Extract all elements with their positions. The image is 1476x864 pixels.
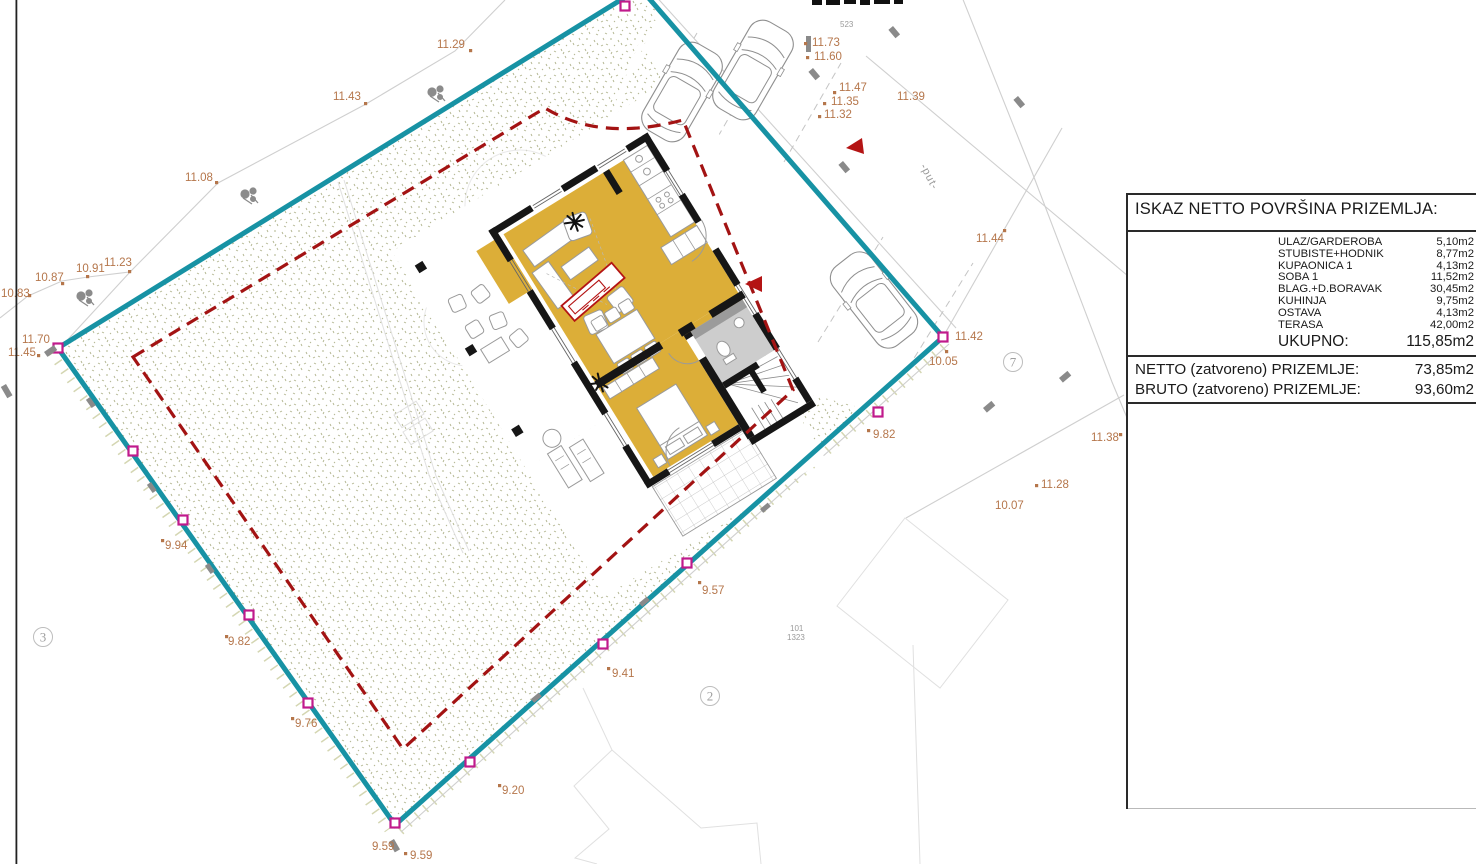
panel-rule <box>1128 230 1476 232</box>
elevation-label: 9.41 <box>612 668 634 680</box>
elevation-dot <box>833 91 836 94</box>
area-table-row: TERASA42,00m2 <box>1278 320 1474 332</box>
elevation-label: 11.23 <box>104 257 132 269</box>
elevation-dot <box>804 42 807 45</box>
elevation-label: 11.60 <box>814 51 842 63</box>
elevation-dot <box>225 635 228 638</box>
elevation-dot <box>818 115 821 118</box>
room-name: NETTO (zatvoreno) PRIZEMLJE: <box>1135 360 1359 380</box>
elevation-dot <box>698 581 701 584</box>
elevation-label: 11.70 <box>22 334 50 346</box>
room-area: 8,77m2 <box>1436 249 1474 261</box>
elevation-label: 9.94 <box>165 540 188 552</box>
elevation-dot <box>128 270 131 273</box>
elevation-label: 11.73 <box>812 37 840 49</box>
elevation-label: 10.87 <box>35 272 64 284</box>
tree-icon <box>240 187 258 204</box>
elevation-label: 11.38 <box>1091 432 1119 444</box>
area-table-total: UKUPNO: 115,85m2 <box>1278 333 1474 351</box>
elevation-dot <box>823 102 826 105</box>
elevation-label: 9.57 <box>702 585 724 597</box>
area-table-title: ISKAZ NETTO POVRŠINA PRIZEMLJA: <box>1135 200 1438 219</box>
tree-icon <box>427 85 445 102</box>
elevation-dot <box>469 49 472 52</box>
elevation-label: 11.35 <box>831 96 859 108</box>
elevation-label: 11.44 <box>976 233 1005 245</box>
panel-rule <box>1128 808 1476 809</box>
elevation-dot <box>28 294 31 297</box>
cadastral-ref: 101 <box>790 624 804 633</box>
room-name: BRUTO (zatvoreno) PRIZEMLJE: <box>1135 380 1361 400</box>
elevation-label: 10.07 <box>995 500 1024 512</box>
site-plan-sheet: 11.2911.4311.0810.8710.9111.2310.8311.70… <box>0 0 1476 864</box>
room-name: STUBISTE+HODNIK <box>1278 249 1384 261</box>
panel-border <box>1126 193 1128 809</box>
elevation-label: 9.20 <box>502 785 524 797</box>
elevation-dot <box>867 429 870 432</box>
room-area: 93,60m2 <box>1415 380 1474 400</box>
elevation-dot <box>291 717 294 720</box>
road-label: -put- <box>917 162 940 192</box>
elevation-dot <box>1003 229 1006 232</box>
elevation-dot <box>607 667 610 670</box>
room-area: 9,75m2 <box>1436 296 1474 308</box>
elevation-dot <box>37 354 40 357</box>
elevation-dot <box>806 56 809 59</box>
panel-rule <box>1128 402 1476 404</box>
room-name: TERASA <box>1278 320 1323 332</box>
room-name: KUHINJA <box>1278 296 1326 308</box>
elevation-dot <box>61 282 64 285</box>
elevation-label: 11.39 <box>897 91 925 103</box>
elevation-label: 9.76 <box>295 718 317 730</box>
area-table-row: NETTO (zatvoreno) PRIZEMLJE:73,85m2 <box>1135 360 1474 380</box>
elevation-label: 9.82 <box>228 636 250 648</box>
elevation-label: 11.42 <box>955 331 983 343</box>
room-name: OSTAVA <box>1278 308 1321 320</box>
elevation-dot <box>404 852 407 855</box>
room-area: 42,00m2 <box>1430 320 1474 332</box>
elevation-dot <box>945 350 948 353</box>
panel-rule <box>1128 355 1476 357</box>
area-table-panel: ISKAZ NETTO POVRŠINA PRIZEMLJA: ULAZ/GAR… <box>1128 0 1476 864</box>
area-table-row: OSTAVA4,13m2 <box>1278 308 1474 320</box>
sheet-frame-line <box>16 0 18 864</box>
elevation-label: 11.43 <box>333 91 361 103</box>
elevation-label: 10.83 <box>1 288 30 300</box>
total-value: 115,85m2 <box>1406 333 1474 351</box>
area-summary-rows: NETTO (zatvoreno) PRIZEMLJE:73,85m2BRUTO… <box>1135 360 1474 399</box>
elevation-label: 11.08 <box>185 172 213 184</box>
elevation-label: 9.82 <box>873 429 895 441</box>
clipped-top-text <box>812 0 903 5</box>
elevation-dot <box>215 181 218 184</box>
tree-icon <box>76 289 94 306</box>
area-table-row: KUHINJA9,75m2 <box>1278 296 1474 308</box>
elevation-label: 9.59 <box>410 850 432 862</box>
elevation-dot <box>498 784 501 787</box>
area-table-row: STUBISTE+HODNIK8,77m2 <box>1278 249 1474 261</box>
elevation-dot <box>1035 484 1038 487</box>
elevation-label: 11.29 <box>437 39 465 51</box>
elevation-dot <box>86 275 89 278</box>
room-area: 4,13m2 <box>1436 308 1474 320</box>
panel-rule <box>1128 193 1476 195</box>
elevation-label: 11.45 <box>8 347 36 359</box>
parcel-number: 7 <box>1010 355 1017 370</box>
elevation-label: 10.91 <box>76 263 105 275</box>
cadastral-ref: 523 <box>840 20 854 29</box>
parcel-number: 3 <box>40 630 47 645</box>
elevation-dot <box>364 102 367 105</box>
elevation-label: 9.59 <box>372 841 394 853</box>
cadastral-ref: 1323 <box>787 633 805 642</box>
area-table-rows: ULAZ/GARDEROBA5,10m2STUBISTE+HODNIK8,77m… <box>1278 237 1474 331</box>
area-table-row: BRUTO (zatvoreno) PRIZEMLJE:93,60m2 <box>1135 380 1474 400</box>
elevation-label: 11.32 <box>824 109 852 121</box>
elevation-dot <box>1119 433 1122 436</box>
elevation-dot <box>161 539 164 542</box>
elevation-label: 10.05 <box>929 356 958 368</box>
room-area: 73,85m2 <box>1415 360 1474 380</box>
parcel-number: 2 <box>707 689 714 704</box>
elevation-label: 11.28 <box>1041 479 1069 491</box>
total-label: UKUPNO: <box>1278 333 1349 351</box>
elevation-label: 11.47 <box>839 82 867 94</box>
